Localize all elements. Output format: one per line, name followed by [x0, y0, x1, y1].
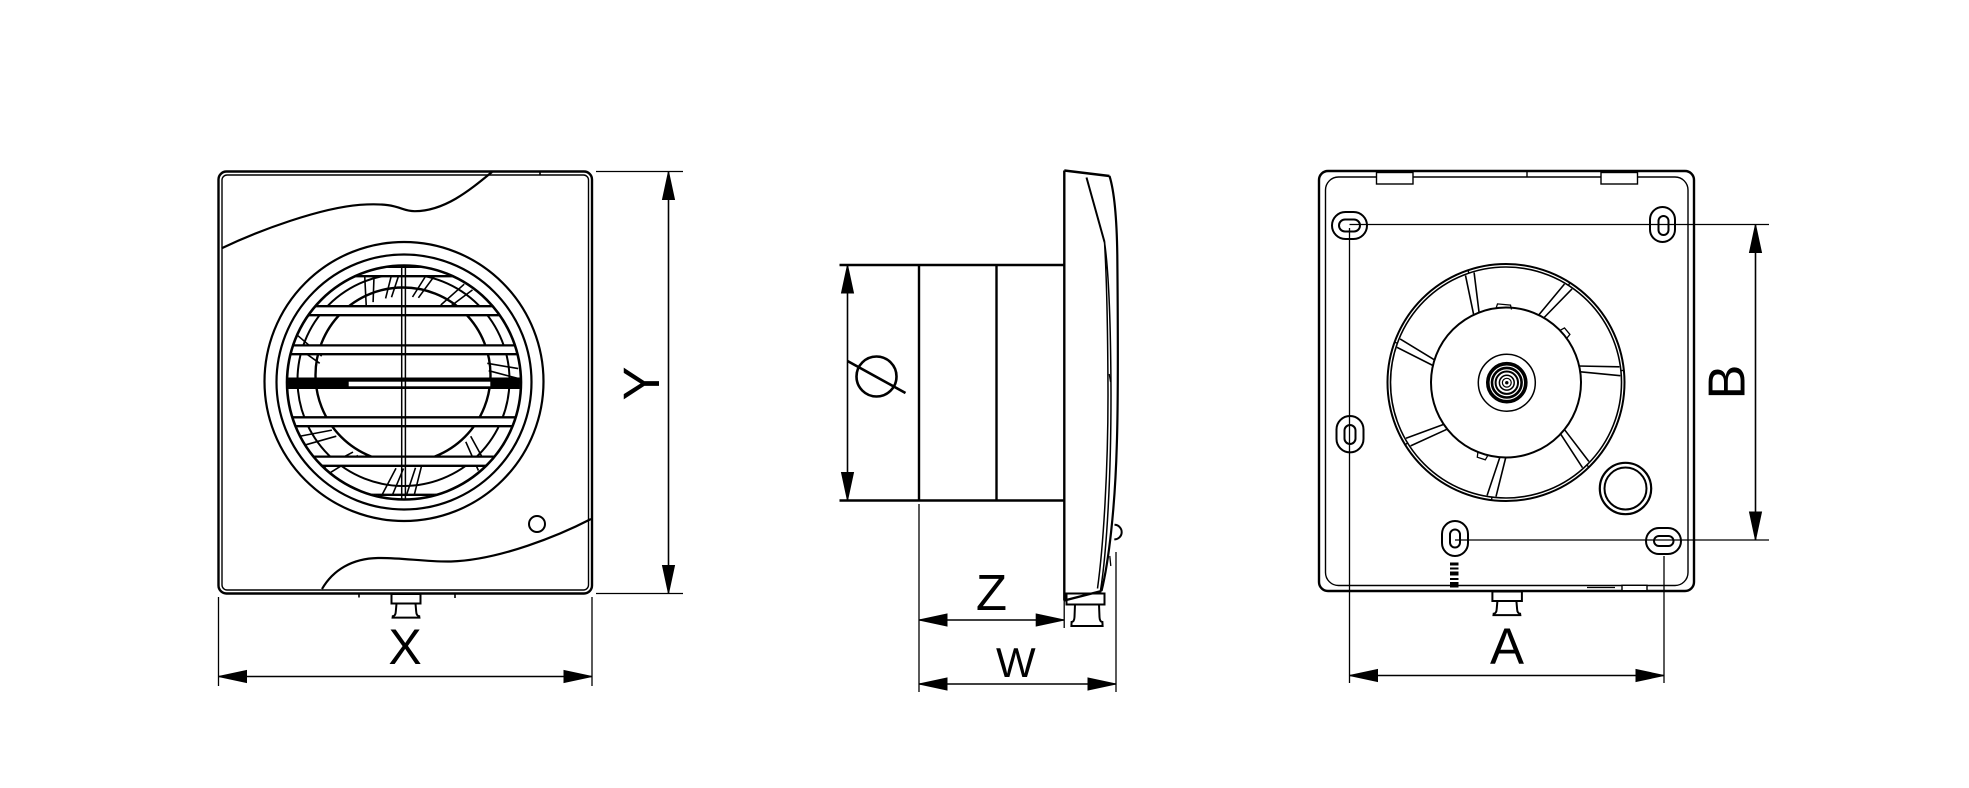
svg-text:W: W [996, 639, 1036, 686]
svg-text:Y: Y [613, 366, 670, 400]
svg-text:B: B [1699, 365, 1757, 400]
svg-text:A: A [1490, 618, 1524, 675]
svg-text:Z: Z [976, 564, 1007, 621]
svg-text:X: X [388, 619, 421, 675]
